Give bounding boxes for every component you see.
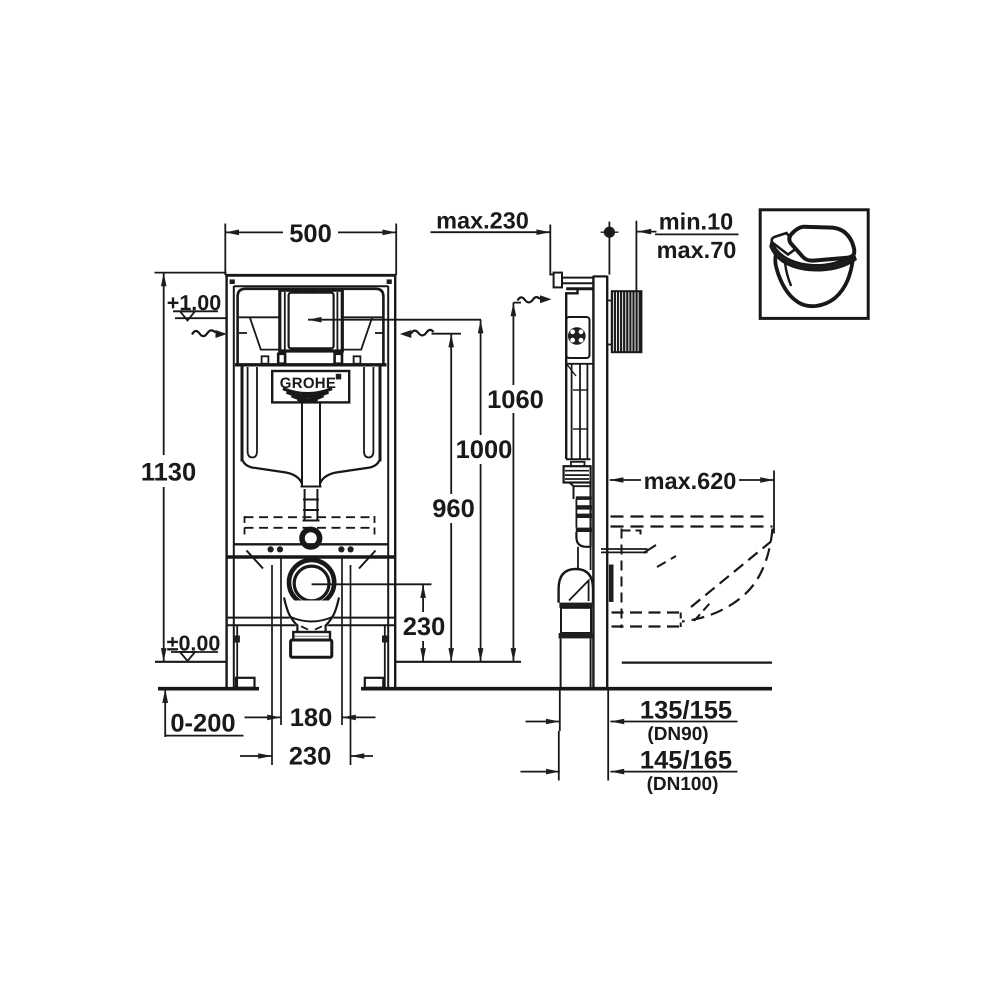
svg-text:(DN100): (DN100) [647,774,719,795]
svg-text:145/165: 145/165 [640,746,732,774]
svg-text:230: 230 [403,613,446,641]
svg-text:min.10: min.10 [659,208,733,234]
svg-text:230: 230 [289,743,332,771]
svg-text:960: 960 [432,495,475,523]
svg-text:500: 500 [289,220,332,248]
svg-text:180: 180 [290,704,333,732]
svg-text:1000: 1000 [456,436,513,464]
svg-text:max.70: max.70 [657,237,737,263]
svg-text:135/155: 135/155 [640,696,732,724]
svg-text:1130: 1130 [141,459,196,487]
svg-text:max.230: max.230 [436,208,529,234]
svg-text:1060: 1060 [487,386,544,414]
svg-text:(DN90): (DN90) [647,724,708,745]
svg-text:0-200: 0-200 [170,709,235,737]
svg-text:max.620: max.620 [644,468,737,494]
